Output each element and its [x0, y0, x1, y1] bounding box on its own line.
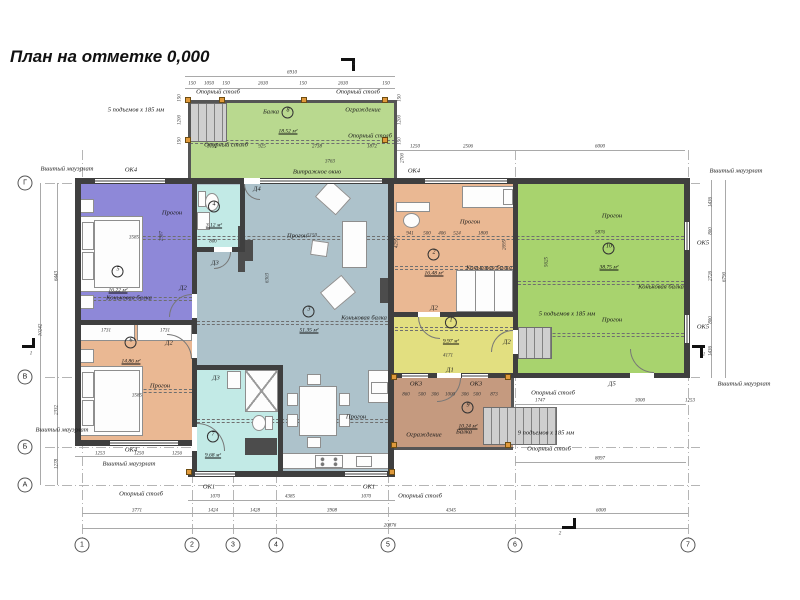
dimension-label: 1200	[398, 115, 403, 125]
annotation-label: ОК5	[697, 324, 709, 331]
room-area: 18.52 м²	[279, 129, 298, 135]
nightstand	[79, 349, 94, 363]
annotation-label: Вшитый мауэрлат	[710, 168, 763, 175]
annotation-label: Д1	[446, 367, 453, 374]
chair	[287, 414, 298, 427]
dimension-label: 873	[490, 393, 498, 398]
fireplace-hearth	[245, 240, 253, 261]
annotation-label: Опорный столб	[531, 390, 575, 397]
dimension-label: 1256	[172, 452, 182, 457]
dimension-label: 3585	[129, 236, 139, 241]
annotation-label: Д2	[503, 339, 510, 346]
dimension-label: 1731	[160, 329, 170, 334]
dimension-label: 6443	[55, 271, 60, 281]
dimension-label: 1436	[709, 197, 714, 207]
dimension-label: 1253	[685, 399, 695, 404]
dimension-label: 1250	[410, 145, 420, 150]
axis-bubble: Г	[18, 176, 33, 191]
stairs-bottom-terrace	[483, 407, 557, 445]
room-tag: 351.35 м²	[300, 306, 319, 337]
dimension-label: 1428	[250, 509, 260, 514]
dimension-label: 2738	[312, 145, 322, 150]
annotation-label: Балка	[263, 109, 279, 116]
room-number: 7	[207, 431, 219, 443]
dimension-label: 406	[438, 232, 446, 237]
dimension-label: 1200	[178, 115, 183, 125]
support-post	[505, 374, 511, 380]
window-ok1	[345, 471, 387, 477]
counter-sink	[371, 382, 388, 394]
dimension-label: 1	[703, 353, 706, 358]
support-post	[391, 442, 397, 448]
dimension-label: 3771	[132, 509, 142, 514]
dimension-label: 1800	[478, 232, 488, 237]
room-tag: 910.24 м²	[459, 402, 478, 433]
room-number: 8	[282, 107, 294, 119]
dimension-label: 20876	[384, 524, 397, 529]
window-ok3	[462, 373, 488, 378]
pillow	[82, 400, 94, 426]
dimension-label: 941	[406, 232, 414, 237]
washing-machine	[227, 371, 241, 389]
annotation-label: Д3	[211, 260, 218, 267]
annotation-label: Прогон	[602, 213, 622, 220]
door-gap-d2	[192, 294, 197, 318]
room-area: 16.22 м²	[109, 288, 128, 294]
wall	[75, 320, 197, 325]
annotation-label: Опорный столб	[119, 491, 163, 498]
chair	[287, 393, 298, 406]
dimension-label: 3908	[327, 509, 337, 514]
annotation-label: ОК5	[697, 240, 709, 247]
dimension-label: 6000	[596, 509, 606, 514]
room-area: 14.86 м²	[122, 359, 141, 365]
dimension-label: 150	[299, 82, 307, 87]
axis-bubble: 7	[681, 538, 696, 553]
dimension-label: 150	[222, 82, 230, 87]
dimension-label: 306	[431, 393, 439, 398]
room-number: 10	[603, 243, 615, 255]
door-gap-d2	[192, 334, 197, 358]
support-post	[389, 469, 395, 475]
annotation-label: Вшитый мауэрлат	[41, 166, 94, 173]
dimension-label: 2630	[258, 82, 268, 87]
annotation-label: Опорный столб	[196, 89, 240, 96]
annotation-label: Д2	[165, 340, 172, 347]
dimension-label: 925	[258, 145, 266, 150]
dimension-label: 1747	[535, 399, 545, 404]
annotation-label: Д5	[608, 381, 615, 388]
wall	[75, 178, 690, 184]
annotation-label: Коньковая балка	[638, 284, 684, 291]
dimension-label: 3763	[325, 160, 335, 165]
annotation-label: Д3	[212, 375, 219, 382]
section-marker	[341, 58, 352, 61]
dimension-label: 6910	[287, 71, 297, 76]
axis-bubble: 3	[226, 538, 241, 553]
pillow	[82, 222, 94, 250]
dimension-label: 150	[382, 82, 390, 87]
dimension-label: 1070	[361, 495, 371, 500]
annotation-label: Вшитый мауэрлат	[103, 461, 156, 468]
axis-bubble: 1	[75, 538, 90, 553]
dimension-label: 2695	[503, 240, 508, 250]
annotation-label: 5 подъемов x 185 мм	[539, 311, 596, 318]
dimension-label: 4385	[285, 495, 295, 500]
annotation-label: 5 подъемов x 185 мм	[108, 107, 165, 114]
room-number: 3	[303, 306, 315, 318]
dimension-label: 150	[398, 94, 403, 102]
stove-icon	[315, 455, 343, 468]
window-ok3	[402, 373, 428, 378]
support-post	[382, 97, 388, 103]
kitchen-sink	[356, 456, 372, 467]
annotation-label: Прогон	[162, 210, 182, 217]
support-post	[391, 374, 397, 380]
wall	[278, 365, 283, 477]
axis-bubble: А	[18, 478, 33, 493]
window-ok4	[95, 178, 165, 184]
dimension-label: 2630	[338, 82, 348, 87]
dimension-label: 1050	[204, 82, 214, 87]
dim-line	[188, 500, 395, 501]
axis-bubble: Б	[18, 440, 33, 455]
chair	[307, 437, 321, 448]
room-tag: 19.97 м²	[443, 317, 459, 348]
room-number: 4	[208, 201, 220, 213]
annotation-label: Прогон	[346, 414, 366, 421]
pillow	[503, 189, 513, 205]
room-area: 38.75 м²	[600, 265, 619, 271]
dim-line	[185, 76, 395, 77]
dimension-label: 860	[402, 393, 410, 398]
annotation-label: Опорный столб	[527, 446, 571, 453]
dimension-label: 2	[353, 62, 356, 67]
support-post	[219, 97, 225, 103]
dimension-label: 150	[178, 94, 183, 102]
annotation-label: Ограждение	[345, 107, 380, 114]
stairs-top-terrace	[190, 103, 227, 142]
annotation-label: Ограждение	[406, 432, 441, 439]
support-post	[185, 97, 191, 103]
dimension-label: 1278	[55, 459, 60, 469]
dimension-label: 2700	[401, 153, 406, 163]
annotation-label: Прогон	[460, 219, 480, 226]
dimension-label: 1250	[134, 452, 144, 457]
annotation-label: Вшитый мауэрлат	[36, 427, 89, 434]
annotation-label: Вшитый мауэрлат	[718, 381, 771, 388]
annotation-label: Прогон	[602, 317, 622, 324]
room-area: 51.35 м²	[300, 328, 319, 334]
support-post	[301, 97, 307, 103]
dimension-label: 150	[188, 82, 196, 87]
room-tag: 216.48 м²	[425, 249, 444, 280]
dimension-label: 3585	[132, 394, 142, 399]
railing	[511, 377, 514, 407]
wall	[75, 178, 81, 446]
annotation-label: Д2	[179, 285, 186, 292]
annotation-label: Витражное окно	[293, 169, 341, 176]
room-tag: 516.22 м²	[109, 266, 128, 297]
room-number: 6	[125, 337, 137, 349]
room-area: 16.48 м²	[425, 271, 444, 277]
window-ok5	[684, 222, 690, 250]
window-vitrage	[252, 178, 382, 184]
wall	[684, 178, 690, 378]
axis-bubble: 5	[381, 538, 396, 553]
shower-icon	[245, 370, 278, 412]
nightstand	[79, 295, 94, 309]
room-tag: 43.12 м²	[206, 201, 222, 232]
room-area: 10.24 м²	[459, 424, 478, 430]
room-number: 5	[112, 266, 124, 278]
window-ok4	[110, 440, 178, 446]
door-gap-d5	[630, 373, 654, 378]
wall	[388, 377, 394, 477]
wardrobe	[456, 270, 513, 312]
dimension-label: 4295	[395, 238, 400, 248]
axis-bubble: 2	[185, 538, 200, 553]
dimension-label: 1731	[101, 329, 111, 334]
annotation-label: Опорный столб	[348, 133, 392, 140]
annotation-label: ОК4	[125, 167, 137, 174]
dimension-label: 5876	[595, 231, 605, 236]
annotation-label: ОК3	[470, 381, 482, 388]
room-tag: 614.86 м²	[122, 337, 141, 368]
annotation-label: Опорный столб	[336, 89, 380, 96]
dimension-label: 5150	[307, 234, 317, 239]
dimension-label: 4345	[446, 509, 456, 514]
annotation-label: Д4	[253, 186, 260, 193]
dimension-label: 500	[473, 393, 481, 398]
dimension-label: 2987	[160, 231, 165, 241]
dimension-label: 2	[559, 532, 562, 537]
annotation-label: 9 подъемов x 185 мм	[518, 430, 575, 437]
room-number: 1	[445, 317, 457, 329]
dimension-label: 306	[461, 393, 469, 398]
section-marker	[32, 338, 35, 348]
purlin-line	[78, 236, 684, 240]
annotation-label: ОК1	[363, 484, 375, 491]
pillow	[82, 372, 94, 398]
wall	[192, 365, 283, 370]
dimension-label: 150	[178, 137, 183, 145]
room-tag: 818.52 м²	[279, 107, 298, 138]
door-gap-d2	[513, 330, 518, 354]
dining-table	[299, 386, 337, 436]
dimension-label: 1253	[95, 452, 105, 457]
dimension-label: 6303	[266, 273, 271, 283]
ridge-line	[197, 321, 388, 325]
chair	[403, 213, 420, 228]
dimension-label: 500	[418, 393, 426, 398]
room-number: 2	[428, 249, 440, 261]
room-tag: 1038.75 м²	[600, 243, 619, 274]
support-post	[185, 137, 191, 143]
dimension-label: 10242	[39, 324, 44, 337]
dimension-label: 500	[423, 232, 431, 237]
sofa	[342, 221, 367, 268]
axis-bubble: 6	[508, 538, 523, 553]
dimension-label: 6000	[595, 145, 605, 150]
dimension-label: 150	[398, 137, 403, 145]
toilet-tank	[265, 416, 273, 430]
annotation-label: Коньковая балка	[466, 265, 512, 272]
dimension-label: 3132	[207, 145, 217, 150]
window-ok4	[425, 178, 507, 184]
toilet-icon	[252, 415, 266, 431]
room-area: 3.12 м²	[206, 223, 222, 229]
window-ok5	[684, 315, 690, 343]
section-marker	[692, 345, 705, 348]
bed-blanket	[94, 370, 140, 432]
dimension-label: 1436	[709, 346, 714, 356]
dim-line	[515, 404, 686, 405]
dim-line	[515, 462, 686, 463]
dimension-label: 1000	[445, 393, 455, 398]
room-tag: 79.68 м²	[205, 431, 221, 462]
dimension-label: 2506	[463, 145, 473, 150]
annotation-label: ОК4	[408, 168, 420, 175]
dimension-label: 800	[709, 316, 714, 324]
coffee-table	[310, 240, 329, 257]
dimension-label: 5625	[545, 257, 550, 267]
dimension-label: 2726	[709, 271, 714, 281]
axis-bubble: В	[18, 370, 33, 385]
dimension-label: 2332	[55, 405, 60, 415]
annotation-label: ОК1	[203, 484, 215, 491]
drawing-title: План на отметке 0,000	[10, 47, 209, 67]
window-ok1	[195, 471, 235, 477]
dimension-label: 1424	[208, 509, 218, 514]
wall	[388, 178, 394, 377]
axis-bubble: 4	[269, 538, 284, 553]
chair	[339, 393, 350, 406]
section-marker	[573, 518, 576, 529]
dimension-label: 6790	[723, 272, 728, 282]
annotation-label: Прогон	[287, 233, 307, 240]
dimension-label: 3000	[635, 399, 645, 404]
annotation-label: Коньковая балка	[341, 315, 387, 322]
annotation-label: Прогон	[150, 383, 170, 390]
support-post	[505, 442, 511, 448]
support-post	[186, 469, 192, 475]
nightstand	[79, 199, 94, 213]
cabinet	[245, 438, 277, 455]
dim-line	[57, 183, 58, 485]
dimension-label: 1070	[210, 495, 220, 500]
chair	[307, 374, 321, 385]
dimension-label: 1	[30, 352, 33, 357]
dim-line	[395, 150, 685, 151]
floor-plan-canvas: План на отметке 0,000	[0, 0, 800, 600]
room-number: 9	[462, 402, 474, 414]
dimension-label: 800	[709, 227, 714, 235]
railing	[393, 447, 513, 450]
dimension-label: 8097	[595, 457, 605, 462]
room-area: 9.68 м²	[205, 453, 221, 459]
annotation-label: Д2	[430, 305, 437, 312]
annotation-label: Опорный столб	[398, 493, 442, 500]
room-area: 9.97 м²	[443, 339, 459, 345]
dimension-label: 1872	[367, 145, 377, 150]
dimension-label: 524	[453, 232, 461, 237]
dimension-label: 800	[209, 240, 217, 245]
desk	[396, 202, 430, 212]
pillow	[82, 252, 94, 280]
dimension-label: 4171	[443, 354, 453, 359]
annotation-label: ОК3	[410, 381, 422, 388]
stairs-green-room	[518, 327, 552, 359]
